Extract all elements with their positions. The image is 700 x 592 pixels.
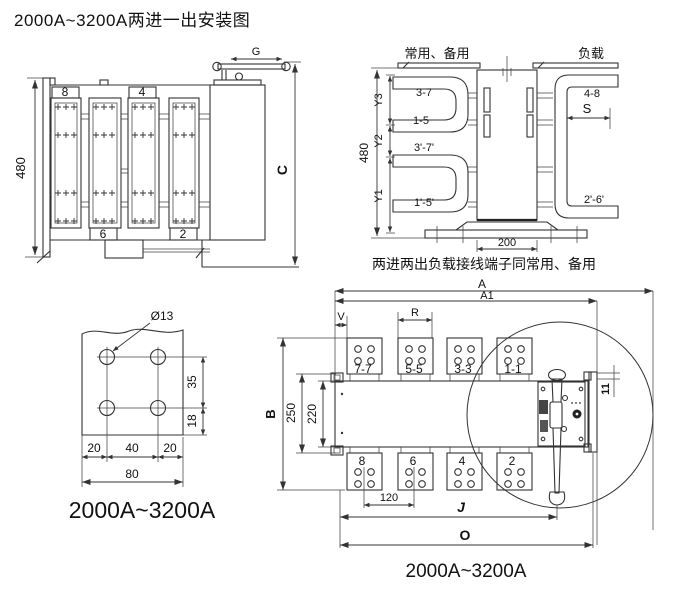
terminal-stubs [468, 93, 553, 207]
mech-block-2 [540, 420, 548, 432]
top-height-dim-label: 480 [357, 143, 371, 163]
dim-20b-label: 20 [163, 441, 177, 455]
mech-block-1 [539, 400, 548, 414]
supply-label: 常用、备用 [404, 46, 469, 61]
pad-4-label: 4 [459, 454, 466, 468]
dim-250-label: 250 [284, 403, 298, 423]
dim-40-label: 40 [125, 441, 139, 455]
dim-220-label: 220 [305, 404, 319, 424]
supply-busbar-upper [393, 77, 468, 132]
pad-6: 6 [398, 447, 433, 490]
pad-5-5-label: 5-5 [405, 362, 423, 376]
term-1-5-label: 1-5 [413, 115, 429, 127]
switch-body-side [210, 62, 290, 240]
dim-v-label: V [337, 311, 345, 323]
busbar-plate [82, 329, 183, 435]
dim-r-label: R [411, 307, 419, 319]
base-width-dim-label: 200 [498, 237, 516, 249]
terminal-4-label: 4 [139, 85, 146, 99]
terminal-2-label: 2 [180, 227, 187, 241]
dim-120-label: 120 [380, 492, 398, 504]
hole-leader-line [113, 323, 150, 351]
dim-18-label: 18 [185, 414, 199, 428]
base-foot [105, 240, 299, 267]
handle-grip-end [549, 492, 564, 505]
dim-j-label: J [457, 499, 466, 515]
busbar-detail-drawing: Ø13 35 18 20 40 20 80 2000A~3200A [69, 309, 216, 523]
y-dimensions: Y3 Y2 Y1 [373, 75, 395, 233]
terminal-6-label: 6 [100, 227, 107, 241]
bolt-holes [100, 350, 166, 416]
pad-5-5: 5-5 [398, 338, 433, 381]
side-view-drawing: 480 [13, 46, 301, 267]
body-rivet-top [341, 393, 343, 395]
front-view-drawing: A A1 V R B 250 220 7 [263, 277, 653, 582]
load-label: 负载 [578, 46, 604, 61]
side-depth-dim-label: C [274, 165, 290, 175]
term-4-8-label: 4-8 [584, 88, 600, 100]
pad-7-7: 7-7 [347, 338, 382, 381]
detail-magnifier-circle [467, 322, 653, 508]
hole-dia-label: Ø13 [151, 309, 174, 323]
top-terminal-pads: 7-7 5-5 3-3 1-1 [347, 338, 532, 381]
diagram-canvas: 2000A~3200A两进一出安装图 480 [0, 0, 700, 592]
handle-width-dim-label: G [252, 46, 261, 58]
pad-8: 8 [347, 447, 382, 490]
top-knob [236, 73, 243, 80]
handle-bar [218, 64, 285, 69]
busbar-contact-marks [55, 104, 195, 224]
mounting-bracket [37, 78, 55, 263]
pad-1-1-label: 1-1 [504, 362, 522, 376]
pad-6-label: 6 [410, 454, 417, 468]
installation-diagram: 480 [0, 0, 700, 592]
dim-s-label: S [583, 101, 592, 116]
pad-7-7-label: 7-7 [354, 362, 372, 376]
body-rivet-bottom [341, 432, 343, 434]
left-clips [331, 373, 343, 455]
bottom-dimensions: 20 40 20 80 [82, 441, 183, 482]
term-3p-7p-label: 3'-7' [414, 142, 434, 154]
dim-a-label: A [478, 277, 486, 291]
bottom-terminal-pads: 8 6 4 2 [347, 447, 532, 490]
dim-20a-label: 20 [87, 441, 101, 455]
detail-caption: 2000A~3200A [69, 497, 216, 523]
end-plate [584, 372, 597, 452]
dim-11-label: 11 [600, 383, 612, 395]
dim-a1-label: A1 [480, 290, 493, 302]
dim-b-label: B [263, 409, 278, 418]
term-2p-6p-label: 2'-6' [584, 194, 604, 206]
handle-knob-right [282, 62, 290, 70]
pad-1-1: 1-1 [497, 338, 532, 381]
dim-y1-label: Y1 [373, 189, 385, 202]
side-height-dim-label: 480 [13, 157, 28, 179]
top-view-drawing: 常用、备用 负载 480 Y3 Y2 Y1 3-7 1-5 [357, 46, 618, 272]
term-1p-5p-label: 1'-5' [414, 197, 434, 209]
front-view-caption: 2000A~3200A [406, 561, 527, 582]
term-3-7-label: 3-7 [416, 87, 432, 99]
operating-handle [549, 370, 566, 506]
pad-3-3-label: 3-3 [454, 362, 472, 376]
pad-2-label: 2 [509, 454, 516, 468]
busbar-columns [51, 98, 199, 228]
switch-column [425, 56, 587, 243]
dim-o-label: O [460, 527, 471, 543]
pad-8-label: 8 [359, 454, 366, 468]
handle-knob-left [213, 62, 221, 70]
pad-2: 2 [497, 447, 532, 490]
terminal-8-label: 8 [62, 85, 69, 99]
wiring-note: 两进两出负载接线端子同常用、备用 [372, 256, 596, 272]
dim-y2-label: Y2 [373, 134, 385, 147]
dim-35-label: 35 [185, 375, 199, 389]
dim-y3-label: Y3 [373, 93, 385, 106]
pad-4: 4 [447, 447, 482, 490]
dim-80-label: 80 [125, 467, 139, 481]
